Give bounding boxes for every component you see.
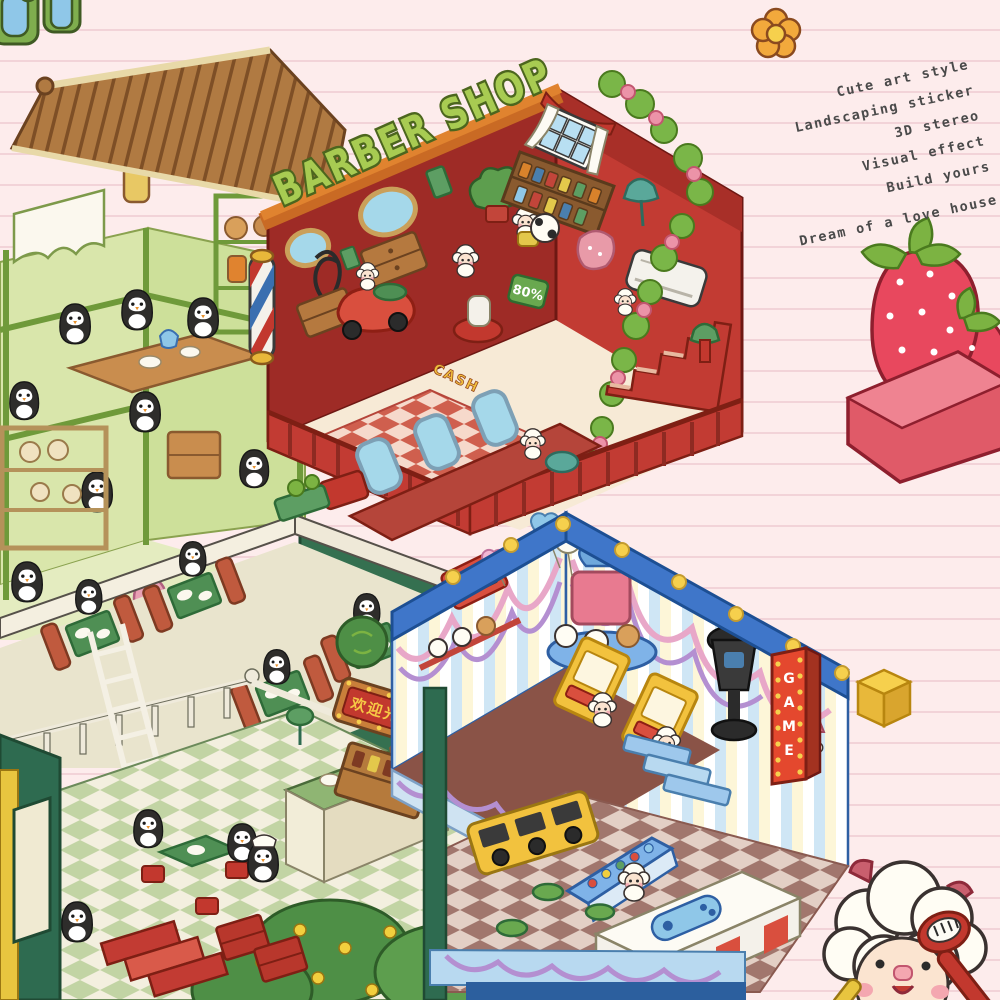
horn-icon [850, 860, 872, 882]
game-sign: G A M E [772, 648, 820, 784]
arch-window [14, 798, 50, 942]
green-stool [374, 284, 406, 300]
yellow-crate [858, 670, 910, 726]
dark-blue-base [466, 982, 746, 1000]
toy-car-chair [338, 284, 414, 339]
game-sign-letter: G [783, 671, 795, 687]
sheep-nose [894, 966, 912, 980]
strawberry-armchair [578, 231, 614, 269]
sheep-mascot [824, 860, 997, 1000]
poster-canvas: 欢迎光临 [0, 0, 1000, 1000]
canisters [0, 0, 80, 44]
pendant-lamp-icon [287, 707, 313, 725]
game-sign-letter: A [784, 695, 795, 711]
wood-crate [168, 432, 220, 478]
game-sign-letter: M [782, 719, 796, 735]
foliage-ball [337, 617, 387, 667]
strawberry-sofa [848, 218, 1000, 482]
arcade: G A M E [392, 513, 910, 1000]
cow-plush [531, 214, 559, 242]
penguin-chef [248, 835, 278, 882]
flower-icon [752, 9, 800, 57]
game-sign-letter: E [784, 743, 794, 759]
